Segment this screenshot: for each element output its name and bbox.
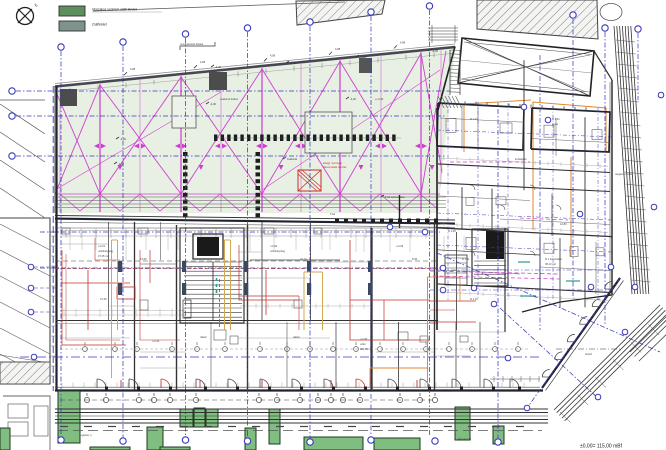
svg-text:u 2.01: u 2.01	[98, 244, 106, 248]
svg-text:raktar: raktar	[200, 335, 207, 339]
svg-text:T-fal: T-fal	[330, 212, 335, 216]
svg-text:T-fal epitese utan: T-fal epitese utan	[385, 195, 405, 199]
svg-text:u 2.05: u 2.05	[360, 337, 368, 341]
svg-text:uzlethelyiseg: uzlethelyiseg	[270, 249, 286, 253]
svg-text:meglevo tamfal: meglevo tamfal	[615, 172, 633, 176]
svg-text:4,08: 4,08	[335, 47, 341, 51]
svg-text:iroda: iroda	[552, 122, 558, 126]
svg-text:Ligetsor u: Ligetsor u	[80, 433, 92, 437]
svg-text:38,13 m2: 38,13 m2	[545, 262, 556, 266]
svg-text:raktar: raktar	[293, 335, 300, 339]
svg-text:-4,30: -4,30	[290, 61, 296, 65]
svg-text:u 2.04: u 2.04	[152, 339, 160, 343]
svg-text:R 1.11: R 1.11	[462, 257, 470, 261]
svg-text:uzlethelyiseg: uzlethelyiseg	[98, 249, 114, 253]
svg-text:282,00 m2: 282,00 m2	[360, 347, 373, 351]
svg-text:-4,30: -4,30	[215, 65, 221, 69]
svg-text:R 1.03: R 1.03	[570, 92, 578, 96]
svg-text:8,45: 8,45	[412, 257, 418, 261]
svg-text:47,25 m2: 47,25 m2	[98, 254, 109, 258]
svg-text:R 1.02: R 1.02	[470, 117, 478, 121]
svg-text:u 2.02: u 2.02	[270, 244, 278, 248]
svg-text:terasz: terasz	[585, 352, 593, 356]
svg-text:u 2.03: u 2.03	[396, 244, 404, 248]
svg-text:Idoszakos vedelem alatti terul: Idoszakos vedelem alatti terulet	[92, 8, 137, 12]
svg-text:R 1.01: R 1.01	[552, 117, 560, 121]
svg-text:14,50: 14,50	[140, 257, 147, 261]
svg-text:R 1.12 irodater: R 1.12 irodater	[545, 257, 562, 261]
svg-text:4,08: 4,08	[400, 40, 406, 44]
svg-text:R 1.15: R 1.15	[470, 297, 478, 301]
svg-text:-4,30: -4,30	[432, 49, 438, 53]
svg-text:4,08: 4,08	[270, 53, 276, 57]
svg-text:47,25: 47,25	[100, 297, 107, 301]
svg-text:R 1.08: R 1.08	[448, 229, 456, 233]
svg-text:4,08: 4,08	[130, 67, 136, 71]
svg-text:Zoldfelulet: Zoldfelulet	[92, 23, 107, 27]
svg-text:felvonulasi terulet: felvonulasi terulet	[323, 165, 347, 169]
svg-text:-1,30: -1,30	[118, 162, 124, 166]
svg-text:-4,30: -4,30	[360, 55, 366, 59]
svg-text:4,08: 4,08	[200, 60, 206, 64]
svg-text:-4,30: -4,30	[210, 102, 216, 106]
svg-text:12,80: 12,80	[560, 222, 567, 226]
svg-text:zsaluzas: zsaluzas	[287, 157, 298, 161]
svg-text:munkaterulet hatara: munkaterulet hatara	[180, 42, 204, 46]
svg-text:kozlekedo: kozlekedo	[515, 157, 527, 161]
svg-text:±0,00= 115,00 mBf: ±0,00= 115,00 mBf	[580, 444, 623, 450]
svg-text:-4,30: -4,30	[350, 97, 356, 101]
svg-text:zsaluzott fodem: zsaluzott fodem	[220, 97, 238, 101]
svg-text:uzlet: uzlet	[360, 342, 366, 346]
svg-text:Rigo-koz ut: Rigo-koz ut	[458, 437, 471, 441]
svg-text:+/-0,00: +/-0,00	[375, 97, 384, 101]
svg-text:22,10: 22,10	[300, 257, 307, 261]
